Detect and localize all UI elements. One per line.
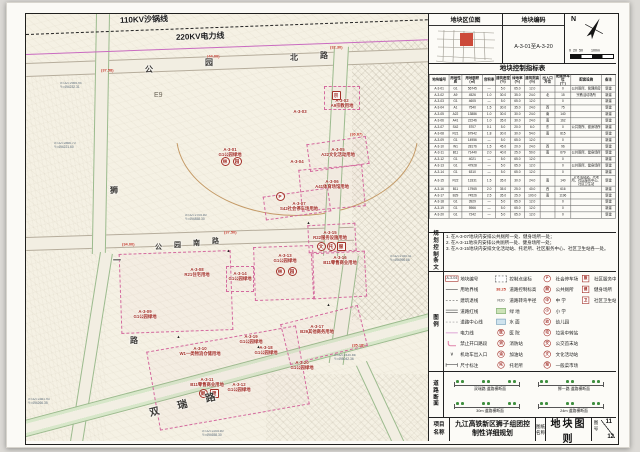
legend-item-label: 水 面 (509, 319, 519, 326)
legend-item: P社会停车场 (541, 273, 579, 284)
legend-item: 小小 学 (541, 306, 579, 317)
table-cell: 12.0 (524, 212, 540, 218)
road-name-char: 狮 (110, 185, 118, 196)
legend-item: 油加油站 (494, 349, 540, 360)
cl-legend-icon (445, 318, 458, 325)
map-facility-icon: 服 (337, 242, 346, 251)
plot-landuse: G1公园绿地 (213, 277, 268, 282)
legend-item: 水 面 (494, 316, 540, 327)
index-table-wrap: 地块编号用地性质用地面积 (㎡)容积率建筑密度 (%)绿地率 (%)建筑限高 (… (429, 74, 616, 222)
table-cell: 新建 (602, 212, 616, 218)
plotbox-legend-icon: A-3-04 (445, 275, 458, 282)
column-header: 用地性质 (449, 74, 462, 85)
plot-label: A-3-17B29其他商务用地 (290, 325, 345, 334)
north-label: N (571, 16, 576, 23)
provisions-section: 规划控制条文 1. 在A-3-07地块内安排公共厕所一处、健身场所一处；2. 在… (429, 232, 616, 272)
legend-item-label: 社区卫生站 (594, 297, 616, 304)
column-header: 绿地率 (%) (510, 74, 524, 85)
map-facility-icon: P (276, 192, 285, 201)
road-section-diagram (538, 399, 604, 408)
scale-bar (570, 54, 614, 59)
provisions-body: 1. 在A-3-07地块内安排公共厕所一处、健身场所一处；2. 在A-3-11地… (444, 232, 616, 271)
map-facility-icon: 林 (276, 267, 285, 276)
plot-landuse: G1公园绿地 (203, 153, 258, 158)
elevation-label: (37.50) (224, 231, 237, 235)
column-header: 出入口 方位 (540, 74, 555, 85)
column-header: 建筑限高 (m) (524, 74, 540, 85)
plot-landuse: G1公园绿地 (258, 259, 313, 264)
legend-item: 尺寸标注 (445, 360, 494, 371)
legend-column: P社会停车场厕公共厕所中中 学小小 学幼幼儿园垃垃圾中转站交公交首末站文文化活动… (541, 273, 579, 370)
plot-label: A-3-01G1公园绿地 (203, 148, 258, 157)
table-cell: A-3-15 (429, 176, 449, 187)
panel-header-row: 地块区位图 地块编码 A-3-01至A-3-20 N (429, 14, 616, 64)
plot-landuse: G1公园绿地 (118, 315, 173, 320)
legend-item: 垃垃圾中转站 (541, 327, 579, 338)
legend-item-label: 文化活动站 (556, 351, 579, 358)
legend-item-label: 电力线 (460, 329, 474, 336)
coordinate-label: X=3272205.80 Y=494658.30 (202, 430, 224, 438)
legend-item: 厕公共厕所 (541, 284, 579, 295)
sheet-frame: 110KV沙锅线 220KV电力线 E9 A-3-01G1公园绿地A-3-02A… (25, 13, 619, 445)
project-name-label: 项目名称 (429, 418, 449, 441)
road-name-char: 园 (174, 240, 181, 250)
rednum-legend-icon: 38.25 (494, 286, 507, 293)
legend-item-label: 托老所 (509, 362, 523, 369)
table-cell: 南 (540, 176, 555, 187)
rad-legend-icon: R20 (494, 297, 507, 304)
plot-landuse: S42社会停车场用地 (272, 207, 327, 212)
road-section-diagram (454, 399, 520, 408)
plot-landuse: A22文化活动用地 (311, 153, 366, 158)
compass-icon (577, 16, 611, 42)
legend-item: 交公交首末站 (541, 338, 579, 349)
table-cell: 7242 (462, 212, 483, 218)
corner-legend-icon (445, 340, 458, 347)
table-cell: R22 (449, 176, 462, 187)
map-facility-icon: 园 (233, 157, 242, 166)
legend-body: A-3-04地块编号用地界线建筑退线道路红线道路中心线电力线禁止开口路段∨机动车… (444, 272, 616, 371)
road-section-item: 30m 道路横断面 (446, 395, 530, 417)
circ-legend-icon: 油 (494, 351, 507, 358)
column-header: 用地面积 (㎡) (462, 74, 483, 85)
plot-landuse: A41体育场馆用地 (305, 185, 360, 190)
line-legend-icon (445, 286, 458, 293)
plot-landuse: W1一类物流仓储用地 (173, 352, 228, 357)
legend-item-label: 社会停车场 (556, 275, 579, 282)
circ-legend-icon: 厕 (541, 286, 554, 293)
plot-code-cell: 地块编码 A-3-01至A-3-20 (502, 14, 564, 63)
location-map-title: 地块区位图 (429, 14, 502, 26)
title-block: 项目名称 九江高铁新区狮子组团控制性详细规划 图纸名称 地块图则 图号 11 1… (429, 418, 616, 441)
map-facility-icon: 文 (317, 242, 326, 251)
circ-legend-icon: 小 (541, 307, 554, 314)
plot-label: A-3-04 (270, 160, 325, 165)
road-name-char: 北 (290, 52, 298, 63)
map-facility-icon: 宗 (332, 91, 341, 100)
legend-item-label: 控制点坐标 (509, 275, 532, 282)
legend-item: 用地界线 (445, 284, 494, 295)
dash-legend-icon (445, 297, 458, 304)
plot-label: A-3-20G1公园绿地 (275, 361, 330, 370)
provision-item: 3. 在A-3-15地块内安排文化活动站、托老所、社区服务中心、社区卫生站各一处… (446, 246, 616, 252)
legend-item-label: 医 院 (509, 329, 519, 336)
road-section-label: 双瑞路 道路横断面 (446, 386, 534, 392)
road-section-label: 30m 道路横断面 (446, 408, 534, 414)
road-section-label: 24m 道路横断面 (530, 408, 618, 414)
road-sections-label: 道路断面 (429, 372, 444, 417)
legend-item: ∨机动车出入口 (445, 349, 494, 360)
coordinate-label: X=3272430.66 Y=495042.36 (334, 354, 356, 362)
table-header-row: 地块编号用地性质用地面积 (㎡)容积率建筑密度 (%)绿地率 (%)建筑限高 (… (429, 74, 615, 85)
elevation-label: (37.58) (101, 69, 114, 73)
dbl-legend-icon (445, 307, 458, 314)
column-header: 备注 (602, 74, 616, 85)
plan-sheet-page: 110KV沙锅线 220KV电力线 E9 A-3-01G1公园绿地A-3-02A… (6, 2, 630, 448)
plot-label: A-3-02A9宗教用地 (315, 99, 370, 108)
plot-label: A-3-10W1一类物流仓储用地 (173, 347, 228, 356)
plot-label: A-3-09G1公园绿地 (118, 310, 173, 319)
table-row: A-3-20G17242—5.065.012.00新建 (429, 212, 615, 218)
legend-item: 道路中心线 (445, 316, 494, 327)
legend-item-label: 绿 地 (509, 308, 519, 315)
column-header: 容积率 (483, 74, 496, 85)
legend-item-label: 小 学 (556, 308, 566, 315)
plot-label: A-3-18G1公园绿地 (239, 346, 294, 355)
column-header: 建筑密度 (%) (496, 74, 511, 85)
table-cell (540, 212, 555, 218)
legend-item: 托托老所 (494, 360, 540, 371)
legend-item-label: 用地界线 (460, 286, 478, 293)
plot-landuse: A9宗教用地 (315, 104, 370, 109)
coordb-legend-icon (494, 275, 507, 282)
sq-legend-icon: 服 (579, 275, 592, 282)
column-header: 地块编号 (429, 74, 449, 85)
legend-label: 图例 (429, 272, 444, 371)
pink-legend-icon (445, 329, 458, 336)
green-legend-icon (494, 307, 507, 314)
legend-item: A-3-04地块编号 (445, 273, 494, 284)
road-name-char: 园 (205, 57, 213, 68)
entrance-arrow-icon: ▲ (176, 335, 180, 340)
column-header: 配建停车位 (个) (555, 74, 571, 85)
road-section-label: 狮一路 道路横断面 (530, 386, 618, 392)
legend-item-label: 幼儿园 (556, 319, 570, 326)
circ-legend-icon: 幼 (541, 318, 554, 325)
legend-item-label: 一般菜市场 (556, 362, 579, 369)
road-name-char: 路 (130, 335, 138, 346)
power-line-110kv (26, 19, 428, 35)
road-name-char: 路 (212, 236, 219, 246)
legend-item-label: 健身场所 (594, 286, 612, 293)
scale-text: 0 20 50 100m (569, 49, 600, 53)
plot-label: A-3-05A22文化活动用地 (311, 148, 366, 157)
table-cell: 140 (555, 176, 571, 187)
table-cell: 24.0 (524, 176, 540, 187)
legend-item-label: 加油站 (509, 351, 523, 358)
sheet-number-cell: 图号 11 12 (591, 418, 616, 441)
table-cell (571, 212, 602, 218)
legend-item: R20道路转弯半径 (494, 295, 540, 306)
legend-item-label: 道路转弯半径 (509, 297, 536, 304)
circ-legend-icon: 垃 (541, 329, 554, 336)
legend-item-label: 尺寸标注 (460, 362, 478, 369)
project-name: 九江高铁新区狮子组团控制性详细规划 (449, 418, 535, 441)
screenshot-root: 110KV沙锅线 220KV电力线 E9 A-3-01G1公园绿地A-3-02A… (0, 0, 640, 452)
circ-legend-icon: 医 (494, 329, 507, 336)
plot-label: A-3-19G1公园绿地 (224, 335, 279, 344)
map-facility-icon: 托 (327, 242, 336, 251)
elevation-label: (36.67) (350, 133, 363, 137)
legend-item: 文文化活动站 (541, 349, 579, 360)
legend-item: 禁止开口路段 (445, 338, 494, 349)
road-sections-section: 道路断面 双瑞路 道路横断面狮一路 道路横断面30m 道路横断面24m 道路横断… (429, 372, 616, 418)
road-section-item: 双瑞路 道路横断面 (446, 373, 530, 395)
sheet-number: 11 (606, 419, 612, 425)
plot-code-title: 地块编码 (503, 14, 564, 26)
legend-item-label: 中 学 (556, 297, 566, 304)
sq-legend-icon: 卫 (579, 297, 592, 304)
power-line-110kv-label: 110KV沙锅线 (120, 14, 168, 26)
table-cell: 0 (555, 212, 571, 218)
elevation-label: (34.00) (122, 243, 135, 247)
table-cell: G1 (449, 212, 462, 218)
water-legend-icon (494, 318, 507, 325)
plot-landuse: R22服务设施用地 (303, 236, 358, 241)
plot-code-value: A-3-01至A-3-20 (503, 42, 564, 50)
table-cell: 65.0 (510, 212, 524, 218)
legend-item: 绿 地 (494, 306, 540, 317)
legend-column: 控制点坐标38.25道路控制标高R20道路转弯半径绿 地水 面医医 院消消防站油… (494, 273, 540, 370)
plot-label: A-3-07S42社会停车场用地 (272, 202, 327, 211)
elevation-label: (32.30) (330, 46, 343, 50)
plot-label: A-3-16B11零售商业用地 (313, 256, 368, 265)
location-mini-map (434, 27, 498, 65)
road-name-char: 公 (145, 64, 153, 75)
plot-landuse: G1公园绿地 (239, 351, 294, 356)
coordinate-label: X=3272381.93 Y=494266.35 (28, 398, 50, 406)
coordinate-label: X=3272705.80 Y=494858.30 (185, 214, 207, 222)
plot-landuse: B29其他商务用地 (290, 330, 345, 335)
legend-item: 幼幼儿园 (541, 316, 579, 327)
circ-legend-icon: 文 (541, 351, 554, 358)
plot-label: A-3-13G1公园绿地 (258, 254, 313, 263)
sheet-number-label: 图号 (593, 420, 599, 432)
table-cell: 5.0 (496, 212, 511, 218)
location-map-cell: 地块区位图 (429, 14, 502, 63)
road-sections-grid: 双瑞路 道路横断面狮一路 道路横断面30m 道路横断面24m 道路横断面 (444, 372, 616, 417)
table-cell: 1.5 (483, 176, 496, 187)
circ-legend-icon: 消 (494, 340, 507, 347)
table-cell: 文化活动站、托老所、社区服务中心、社区卫生站 (571, 176, 602, 187)
parcel-boundary (119, 250, 234, 334)
table-cell: 30.0 (510, 176, 524, 187)
sheet-total: 12 (607, 434, 614, 440)
provisions-label: 规划控制条文 (429, 232, 444, 271)
plot-label: A-3-14G1公园绿地 (213, 272, 268, 281)
table-cell: — (483, 212, 496, 218)
power-line-220kv-label: 220KV电力线 (176, 30, 225, 43)
plot-label: A-3-15R22服务设施用地 (303, 231, 358, 240)
entrance-arrow-icon: ▲ (226, 249, 230, 254)
column-header: 配套设施 (571, 74, 602, 85)
info-panel: 地块区位图 地块编码 A-3-01至A-3-20 N (428, 14, 616, 441)
legend-column: 服社区服务中心健健身场所卫社区卫生站 (579, 273, 616, 370)
legend-item: 医医 院 (494, 327, 540, 338)
road-section-item: 狮一路 道路横断面 (530, 373, 614, 395)
circ-legend-icon: 中 (541, 297, 554, 304)
coordinate-label: X=3272780.41 Y=494996.66 (390, 255, 412, 263)
arrv-legend-icon: ∨ (445, 351, 458, 358)
legend-item: 消消防站 (494, 338, 540, 349)
road-name-char: 南 (193, 238, 200, 248)
legend-item-label: 公交首末站 (556, 340, 579, 347)
north-scale-cell: N 0 20 50 100m (564, 14, 616, 63)
road-section-diagram (454, 377, 520, 386)
legend-item-label: 机动车出入口 (460, 351, 487, 358)
legend-item-label: 禁止开口路段 (460, 340, 487, 347)
table-cell: A-3-20 (429, 212, 449, 218)
area-label-e9: E9 (154, 92, 163, 99)
legend-item-label: 地块编号 (460, 275, 478, 282)
legend-item: 菜一般菜市场 (541, 360, 579, 371)
elevation-label: (35.18) (352, 344, 365, 348)
legend-item: 控制点坐标 (494, 273, 540, 284)
legend-item-label: 道路中心线 (460, 319, 483, 326)
legend-item-label: 道路控制标高 (509, 286, 536, 293)
road-name-char: 一 (113, 255, 121, 266)
entrance-arrow-icon: ▲ (256, 345, 260, 350)
table-row: A-3-15R22133311.535.030.024.0南140文化活动站、托… (429, 176, 615, 187)
drawing-name: 地块图则 (545, 418, 591, 441)
legend-item: 道路红线 (445, 306, 494, 317)
legend-item: 服社区服务中心 (579, 273, 616, 284)
table-cell: 35.0 (496, 176, 511, 187)
plot-label: A-3-06A41体育场馆用地 (305, 180, 360, 189)
map-facility-icon: 园 (288, 267, 297, 276)
legend-item: 38.25道路控制标高 (494, 284, 540, 295)
legend-item: 中中 学 (541, 295, 579, 306)
road-name-char: 路 (320, 50, 328, 61)
legend-item-label: 道路红线 (460, 308, 478, 315)
coordinate-label: X=3272866.70 Y=494221.60 (54, 142, 76, 150)
plot-landuse: G1公园绿地 (275, 366, 330, 371)
plot-label: A-3-03 (273, 110, 328, 115)
legend-item: 健健身场所 (579, 284, 616, 295)
sq-legend-icon: 健 (579, 286, 592, 293)
circ-legend-icon: 菜 (541, 361, 554, 368)
legend-item: 电力线 (445, 327, 494, 338)
entrance-arrow-icon: ▲ (306, 221, 310, 226)
plot-index-table: 地块编号用地性质用地面积 (㎡)容积率建筑密度 (%)绿地率 (%)建筑限高 (… (429, 74, 616, 219)
plot-landuse: G1公园绿地 (212, 388, 267, 393)
legend-section: 图例 A-3-04地块编号用地界线建筑退线道路红线道路中心线电力线禁止开口路段∨… (429, 272, 616, 372)
legend-item-label: 消防站 (509, 340, 523, 347)
legend-column: A-3-04地块编号用地界线建筑退线道路红线道路中心线电力线禁止开口路段∨机动车… (445, 273, 494, 370)
road-section-item: 24m 道路横断面 (530, 395, 614, 417)
legend-item-label: 建筑退线 (460, 297, 478, 304)
drawing-name-label: 图纸名称 (535, 418, 545, 441)
plot-landuse: G1公园绿地 (224, 340, 279, 345)
table-cell: 新建 (602, 176, 616, 187)
plot-landuse: B11零售商业用地 (313, 261, 368, 266)
legend-item: 建筑退线 (445, 295, 494, 306)
coordinate-label: X=3272985.94 Y=494232.31 (60, 82, 82, 90)
entrance-arrow-icon: ▲ (326, 303, 330, 308)
dim-legend-icon (445, 361, 458, 368)
legend-item-label: 垃圾中转站 (556, 329, 579, 336)
plot-id: A-3-04 (270, 160, 325, 165)
plot-id: A-3-03 (273, 110, 328, 115)
location-highlight (460, 33, 473, 46)
table-cell: 13331 (462, 176, 483, 187)
road-section-diagram (538, 377, 604, 386)
map-canvas: 110KV沙锅线 220KV电力线 E9 A-3-01G1公园绿地A-3-02A… (26, 14, 428, 441)
map-facility-icon: 林 (221, 157, 230, 166)
circ-legend-icon: 托 (494, 361, 507, 368)
circ-legend-icon: P (541, 275, 554, 282)
plot-label: A-3-12G1公园绿地 (212, 383, 267, 392)
legend-item-label: 公共厕所 (556, 286, 574, 293)
legend-item-label: 社区服务中心 (594, 275, 616, 282)
circ-legend-icon: 交 (541, 340, 554, 347)
road-name-char: 公 (155, 242, 162, 252)
legend-item: 卫社区卫生站 (579, 295, 616, 306)
